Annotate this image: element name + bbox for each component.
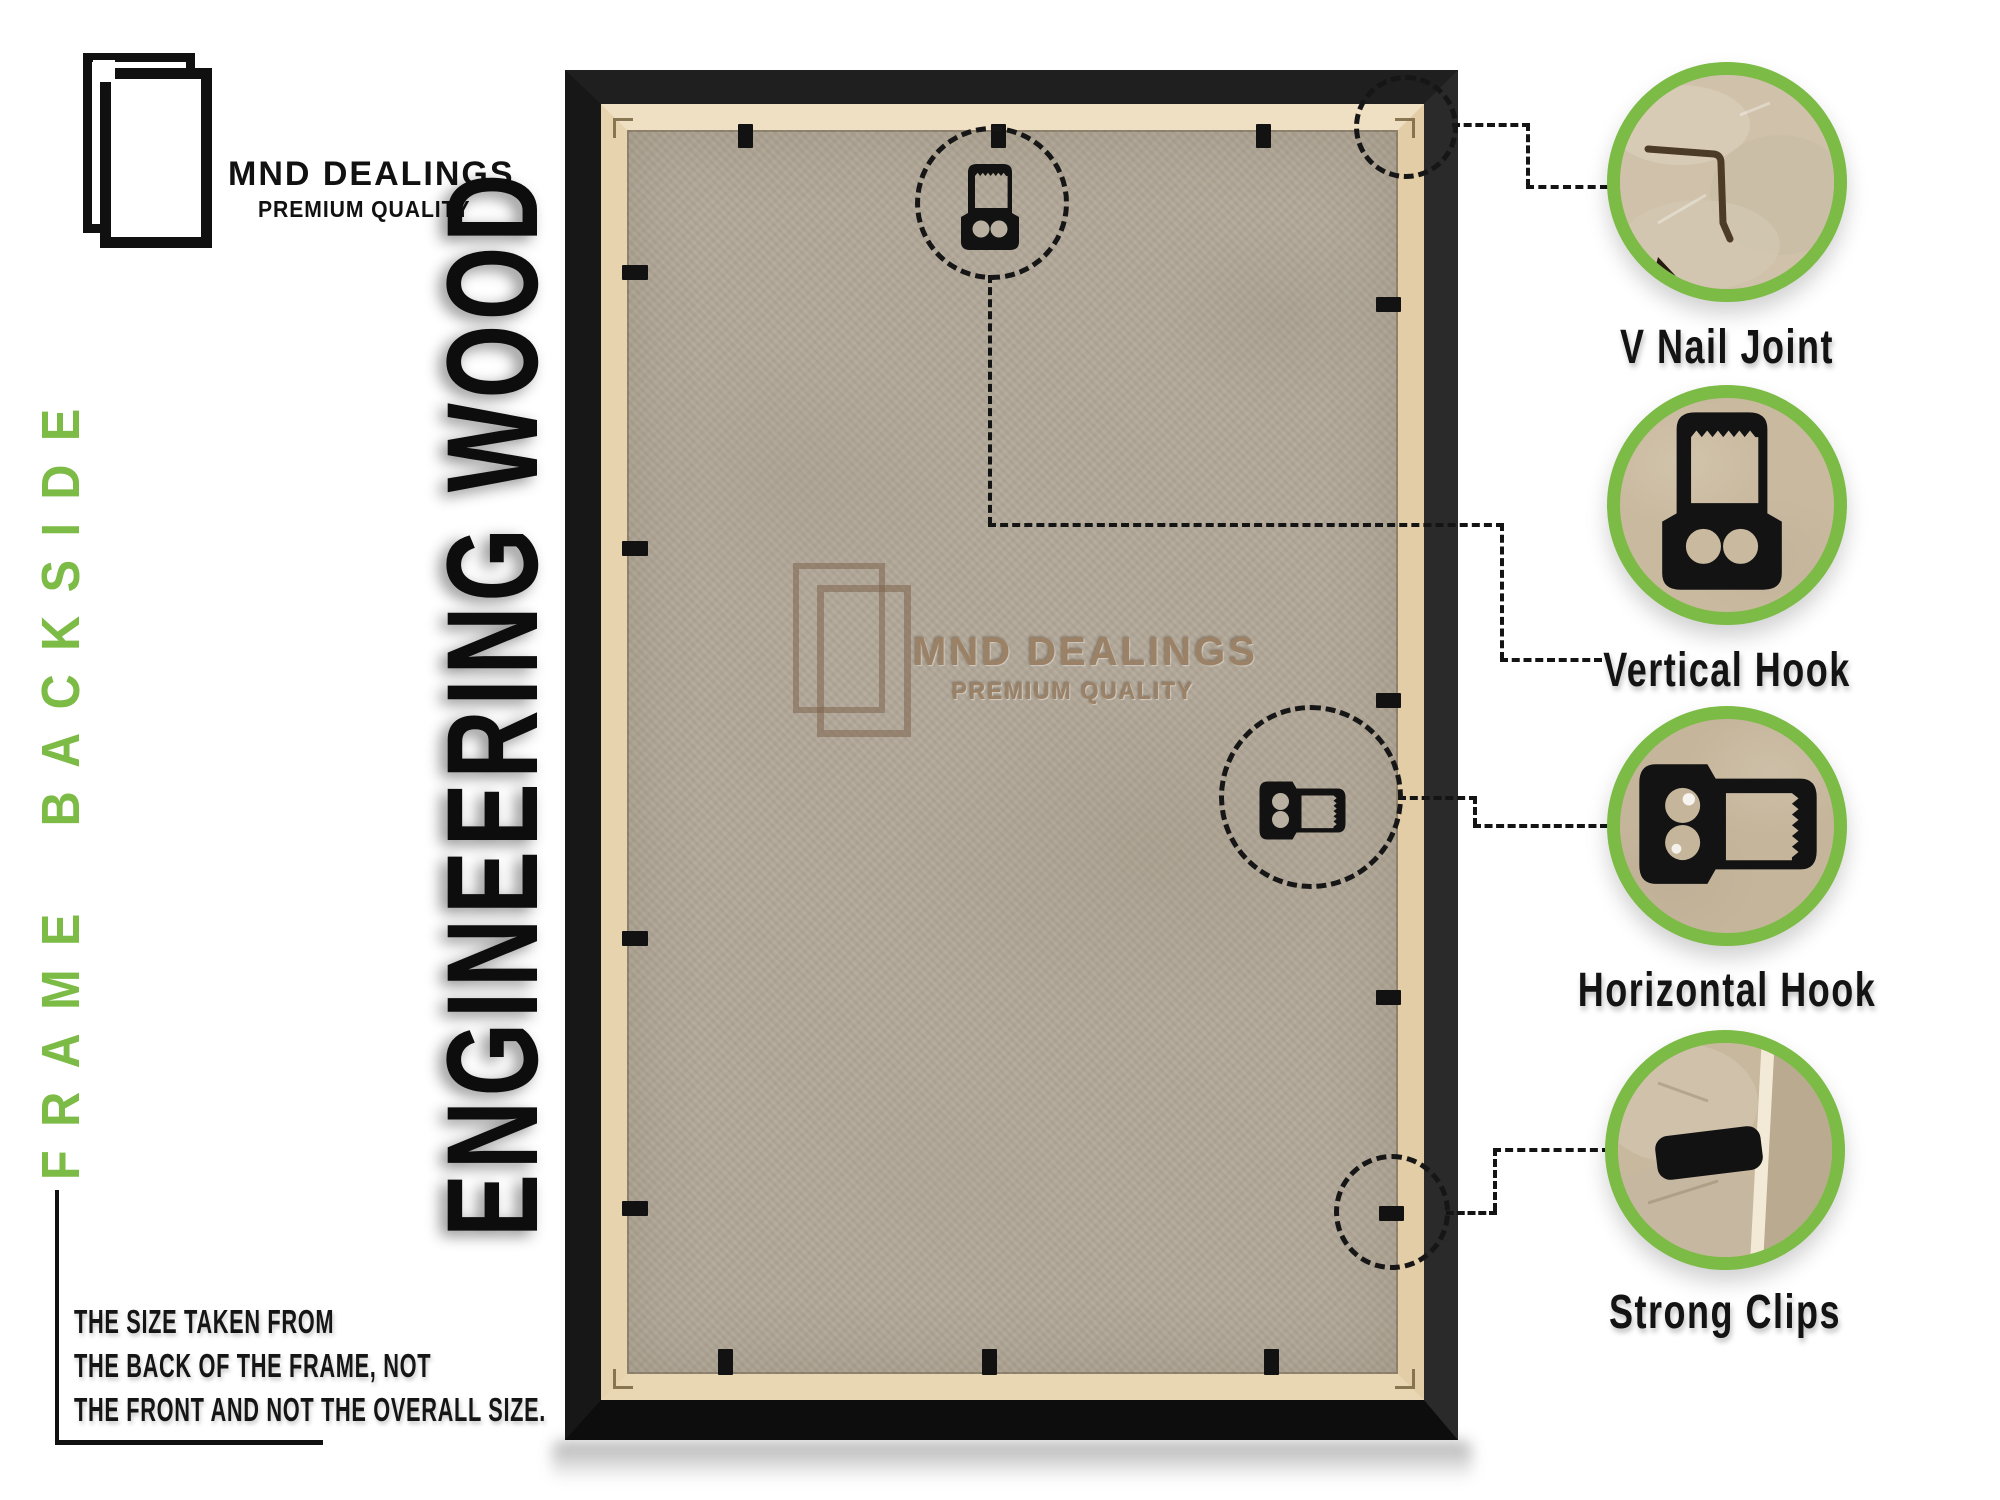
watermark-name: MND DEALINGS	[913, 630, 1233, 675]
clip	[622, 265, 648, 280]
clip	[622, 541, 648, 556]
callout-strong-clips	[1605, 1030, 1845, 1270]
callout-label-v-nail-joint: V Nail Joint	[1562, 320, 1892, 375]
horizontal-hook-photo-icon	[1620, 719, 1834, 933]
material-title-text: ENGINEERING WOOD	[418, 169, 568, 1237]
callout-label-strong-clips: Strong Clips	[1560, 1285, 1890, 1340]
vertical-hook-photo-icon	[1620, 398, 1834, 612]
v-nail-mark	[613, 1369, 633, 1389]
watermark-tagline: PREMIUM QUALITY	[921, 678, 1225, 706]
v-nail-mark	[1395, 1369, 1415, 1389]
leader-line	[1398, 796, 1477, 800]
clip	[622, 1201, 648, 1216]
callout-label-vertical-hook: Vertical Hook	[1562, 643, 1892, 698]
size-note-line3: THE FRONT AND NOT THE OVERALL SIZE.	[74, 1388, 496, 1432]
leader-line	[1500, 523, 1504, 660]
clip	[622, 931, 648, 946]
callout-vertical-hook	[1607, 385, 1847, 625]
clip	[1376, 693, 1401, 708]
leader-line	[1473, 824, 1608, 828]
size-note: THE SIZE TAKEN FROM THE BACK OF THE FRAM…	[74, 1300, 496, 1432]
clip	[718, 1349, 733, 1375]
callout-label-horizontal-hook: Horizontal Hook	[1562, 963, 1892, 1018]
brand-logo-rect-front	[100, 68, 212, 248]
note-underline	[55, 1440, 323, 1445]
leader-line	[988, 523, 1504, 527]
leader-line	[1473, 796, 1477, 826]
vertical-hook-highlight-circle	[915, 126, 1069, 280]
leader-line	[1526, 123, 1530, 187]
strong-clips-photo-icon	[1618, 1043, 1832, 1257]
clip	[982, 1349, 997, 1375]
leader-line	[988, 275, 992, 525]
clip	[1376, 297, 1401, 312]
callout-v-nail-joint	[1607, 62, 1847, 302]
clip	[1376, 990, 1401, 1005]
frame-floor-shadow	[552, 1441, 1472, 1481]
v-nail-mark	[613, 118, 633, 138]
size-note-line2: THE BACK OF THE FRAME, NOT	[74, 1344, 496, 1388]
note-vertical-line	[55, 1190, 59, 1442]
clip	[738, 124, 753, 148]
leader-line	[1526, 185, 1608, 189]
leader-line	[1493, 1148, 1497, 1211]
leader-line	[1452, 123, 1530, 127]
horizontal-hook-highlight-circle	[1219, 705, 1403, 889]
clip	[1256, 124, 1271, 148]
leader-line	[1500, 658, 1602, 662]
callout-horizontal-hook	[1607, 706, 1847, 946]
material-title: ENGINEERING WOOD	[430, 262, 555, 1237]
clip	[1264, 1349, 1279, 1375]
leader-line	[1446, 1211, 1497, 1215]
clip-highlight-circle	[1334, 1154, 1450, 1270]
side-label-text: FRAME BACKSIDE	[30, 385, 92, 1180]
side-label: FRAME BACKSIDE	[16, 415, 106, 1180]
size-note-line1: THE SIZE TAKEN FROM	[74, 1300, 496, 1344]
product-infographic: MND DEALINGS PREMIUM QUALITY FRAME BACKS…	[0, 0, 2000, 1500]
corner-joint-highlight-circle	[1354, 75, 1458, 179]
v-nail-joint-photo-icon	[1620, 75, 1834, 289]
leader-line	[1493, 1148, 1610, 1152]
